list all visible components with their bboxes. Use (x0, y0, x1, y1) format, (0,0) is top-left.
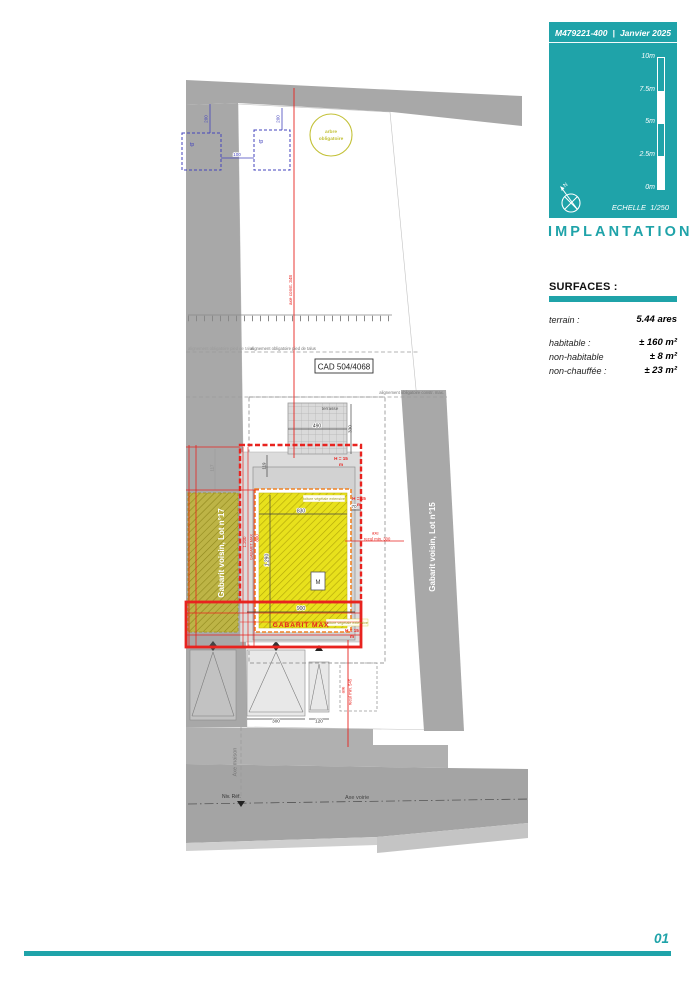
h15-a: H = 15 (334, 456, 348, 461)
project-ref: M479221-400 (555, 28, 607, 38)
dim-490: 490 (313, 424, 322, 430)
dim-1200: 1.200 (242, 536, 247, 548)
niv-ref-label: Niv. Réf. (222, 794, 241, 800)
axe-lower: axe (341, 686, 346, 693)
scale-tick-0m: 0m (625, 184, 655, 191)
dim-200-right: 200 (276, 115, 281, 123)
sheet-title: IMPLANTATION (548, 224, 680, 240)
lot17-label: Gabarit voisin, Lot n°17 (217, 508, 226, 598)
surfaces-block: SURFACES : terrain : 5.44 ares habitable… (549, 281, 677, 378)
h15-b-unit: m (357, 502, 361, 507)
cad-text: CAD 504/4068 (318, 363, 371, 372)
h15-b: H = 15 (352, 496, 366, 501)
gabarit-max-left: GABARIT MAX (250, 534, 254, 560)
cad-label: CAD 504/4068 (315, 359, 373, 373)
toiture-label-top: toiture végétale extensive (303, 497, 345, 501)
meter-label: M (316, 580, 321, 586)
dim-119: 119 (262, 462, 267, 470)
axe-const: axe const. 348 (288, 275, 293, 305)
dim-117: 117 (210, 464, 215, 472)
surface-row-non-habitable: non-habitable ± 8 m² (549, 350, 677, 364)
axe-maison-label: Axe maison (233, 748, 239, 777)
dim-900: 900 (297, 606, 306, 612)
scale-bar (657, 57, 665, 190)
surface-value: ± 23 m² (644, 364, 677, 378)
axe-right: axe (372, 531, 379, 536)
echelle-value: 1/250 (650, 203, 669, 212)
dim-330: 330 (348, 425, 353, 433)
h15-a-unit: m (339, 462, 343, 467)
h15-c-unit: m (350, 634, 354, 639)
surface-row-non-chauffee: non-chauffée : ± 23 m² (549, 364, 677, 378)
scale-tick-10m: 10m (625, 53, 655, 60)
footer-rule (24, 951, 671, 956)
surface-value: ± 160 m² (639, 336, 677, 350)
surface-label: non-habitable (549, 350, 604, 364)
header-separator: | (613, 28, 615, 38)
scale-text: ECHELLE 1/250 (612, 203, 669, 212)
recul-300: recul min. 300 (364, 537, 391, 542)
dim-200-left: 200 (204, 115, 209, 123)
tree-label-2: obligatoire (319, 136, 344, 142)
tree-label-1: arbre (325, 129, 337, 135)
toiture-label-bottom: toiture végétale extensive (326, 621, 368, 625)
tp-right: tp (259, 139, 263, 145)
title-panel: M479221-400 | Janvier 2025 10m 7.5m 5m 2… (549, 22, 677, 218)
surface-value: ± 8 m² (650, 350, 677, 364)
surfaces-underline (549, 296, 677, 302)
neighbor-roof-lot17 (188, 493, 238, 632)
align-constr: alignement obligatoire constr. max. (379, 390, 444, 395)
gabarit-max-bottom: GABARIT MAX (273, 622, 330, 629)
surface-row-habitable: habitable : ± 160 m² (549, 336, 677, 350)
sidewalk (186, 727, 448, 768)
align-talus: alignement obligatoire pied de talus (250, 346, 316, 351)
surface-value: 5.44 ares (636, 313, 677, 327)
dim-300: 300 (272, 719, 280, 724)
scale-tick-7-5m: 7.5m (625, 86, 655, 93)
dim-120: 120 (315, 719, 323, 724)
page-number: 01 (654, 931, 669, 946)
recul-545: recul min. 545 (348, 678, 353, 705)
surface-label: non-chauffée : (549, 364, 607, 378)
dim-100: 100 (233, 152, 241, 157)
dim-800: 800 (255, 534, 260, 542)
surfaces-heading: SURFACES : (549, 281, 677, 293)
dim-830: 830 (297, 509, 306, 515)
scale-tick-2-5m: 2.5m (625, 151, 655, 158)
surface-label: habitable : (549, 336, 591, 350)
lot15-label: Gabarit voisin, Lot n°15 (428, 502, 437, 592)
document-page: alignement obligatoire pied de talus ali… (0, 0, 699, 983)
panel-header: M479221-400 | Janvier 2025 (549, 22, 677, 43)
north-compass-icon: N (555, 180, 585, 216)
axe-voirie-label: Axe voirie (345, 795, 369, 801)
terrasse-label: terrasse (322, 406, 339, 411)
echelle-label: ECHELLE (612, 203, 646, 212)
align-talus-left: alignement obligatoire pied de talus (188, 346, 254, 351)
project-date: Janvier 2025 (620, 28, 671, 38)
tp-left: tp (190, 142, 194, 148)
left-neighbor-strip (186, 103, 247, 727)
surface-row-terrain: terrain : 5.44 ares (549, 313, 677, 327)
h15-c: H = 15 (345, 628, 359, 633)
dim-1290: 1.290 (265, 554, 271, 567)
scale-tick-5m: 5m (625, 118, 655, 125)
surface-label: terrain : (549, 313, 580, 327)
